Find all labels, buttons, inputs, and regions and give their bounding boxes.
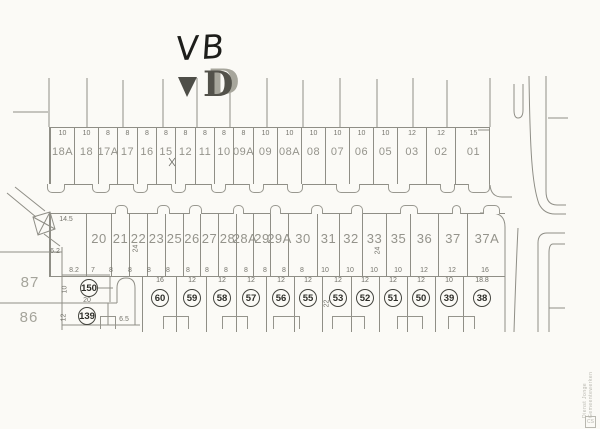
lot-frontage-dim: 12 <box>334 277 342 284</box>
parcel-frontage-dim: 15 <box>470 130 478 137</box>
driveway-mark <box>211 184 226 193</box>
lot-frontage-dim: 12 <box>277 277 285 284</box>
parcel-frontage-dim: 8 <box>184 130 188 137</box>
driveway-mark <box>270 205 281 214</box>
parcel-08A: 1008A <box>277 128 301 184</box>
watermark-text: Dienst Jonge Gemeentewerken <box>582 338 592 418</box>
parcel-09A: 809A <box>233 128 253 184</box>
dim-label: 8 <box>282 267 286 274</box>
circled-lot-number-139: 139 <box>78 307 96 325</box>
lot-frontage-dim: 12 <box>218 277 226 284</box>
circled-lot-number-57: 57 <box>242 289 260 307</box>
parcel-frontage-dim: 8 <box>222 130 226 137</box>
parcel-number: 22 <box>131 231 146 276</box>
dim-label: 8 <box>224 267 228 274</box>
parcel-frontage-dim: 10 <box>83 130 91 137</box>
dim-label: 12 <box>448 267 456 274</box>
driveway-mark <box>388 184 410 193</box>
driveway-mark <box>440 184 455 193</box>
dim-label: 8 <box>128 267 132 274</box>
circled-lot-number-58: 58 <box>213 289 231 307</box>
circled-lot-number-59: 59 <box>183 289 201 307</box>
driveway-mark <box>351 205 363 214</box>
parcel-15: 815 <box>156 128 175 184</box>
parcel-02: 1202 <box>426 128 455 184</box>
parcel-number: 18 <box>80 146 93 158</box>
parcel-number: 23 <box>149 231 164 276</box>
parcel-18: 1018 <box>74 128 98 184</box>
parcel-frontage-dim: 10 <box>262 130 270 137</box>
dim-label: 7 <box>91 267 95 274</box>
driveway-mark <box>311 205 323 214</box>
adjacent-parcel-label: 87 <box>21 274 40 291</box>
parcel-number: 01 <box>467 146 480 158</box>
parcel-number: 03 <box>405 146 418 158</box>
parcel-frontage-dim: 10 <box>286 130 294 137</box>
lot-separator <box>142 277 143 332</box>
parcel-12: 812 <box>175 128 195 184</box>
lot-frontage-dim: 16 <box>156 277 164 284</box>
dim-label: 10 <box>62 286 69 294</box>
parcel-20: 20 <box>86 214 111 276</box>
parcel-number: 15 <box>159 146 172 158</box>
parcel-number: 05 <box>379 146 392 158</box>
diagonal-road <box>15 187 45 211</box>
dim-label: 8 <box>205 267 209 274</box>
dim-label: 8 <box>147 267 151 274</box>
dim-label: 14.5 <box>59 216 73 223</box>
circled-lot-number-51: 51 <box>384 289 402 307</box>
block-corner <box>549 244 565 332</box>
parcel-05: 1005 <box>373 128 397 184</box>
parcel-number: 08 <box>307 146 320 158</box>
dim-label: 6.5 <box>119 316 129 323</box>
lot-separator <box>206 277 207 332</box>
circled-lot-number-55: 55 <box>299 289 317 307</box>
circled-lot-number-53: 53 <box>329 289 347 307</box>
dim-label: 6.2 <box>50 248 60 255</box>
parcel-number: 09 <box>259 146 272 158</box>
handwritten-block-label: VB <box>175 27 229 69</box>
printed-v-fragment <box>178 77 197 97</box>
parcel-number: 07 <box>331 146 344 158</box>
dim-label: 10 <box>394 267 402 274</box>
house-footprint <box>448 316 475 329</box>
driveway-mark <box>452 205 461 214</box>
dim-label: 8 <box>166 267 170 274</box>
parcel-number: 16 <box>140 146 153 158</box>
dim-label: 24 <box>133 245 140 253</box>
driveway-mark <box>468 184 490 193</box>
parcel-17A: 817A <box>98 128 117 184</box>
driveway-mark <box>189 205 202 214</box>
parcel-row-north: 1018A1018817A817816815812811810809A10091… <box>49 127 490 185</box>
adjacent-parcel-label: 86 <box>20 309 39 326</box>
house-footprint <box>332 316 365 329</box>
parcel-frontage-dim: 8 <box>106 130 110 137</box>
circled-lot-number-50: 50 <box>412 289 430 307</box>
street-island <box>514 84 523 118</box>
driveway-mark <box>287 184 303 193</box>
parcel-number: 02 <box>434 146 447 158</box>
driveway-mark <box>400 205 418 214</box>
parcel-frontage-dim: 8 <box>145 130 149 137</box>
parcel-11: 811 <box>195 128 214 184</box>
lot-frontage-dim: 12 <box>417 277 425 284</box>
driveway-mark <box>249 184 264 193</box>
house-footprint <box>163 316 189 329</box>
circled-lot-number-39: 39 <box>440 289 458 307</box>
street-line <box>529 76 566 214</box>
cadastral-map-scan: VB D Dienst Jonge Gemeentewerken CS 1018… <box>0 0 600 429</box>
dim-label: 20 <box>83 297 91 304</box>
parcel-number: 10 <box>217 146 230 158</box>
circled-lot-number-52: 52 <box>356 289 374 307</box>
dim-label: 10 <box>321 267 329 274</box>
diagonal-road <box>7 193 36 217</box>
house-footprint <box>273 316 300 329</box>
parcel-frontage-dim: 8 <box>164 130 168 137</box>
lot-frontage-dim: 12 <box>247 277 255 284</box>
driveway-mark <box>233 205 244 214</box>
driveway-mark <box>483 205 500 214</box>
parcel-08: 1008 <box>301 128 325 184</box>
parcel-frontage-dim: 12 <box>437 130 445 137</box>
parcel-row-middle: 202122232526272828A2929A3031323335363737… <box>49 213 505 277</box>
dim-label: 8 <box>244 267 248 274</box>
driveway-mark <box>47 184 65 193</box>
parcel-number: 06 <box>355 146 368 158</box>
parcel-07: 1007 <box>325 128 349 184</box>
parcel-frontage-dim: 10 <box>59 130 67 137</box>
block-corner <box>538 233 565 332</box>
lot-separator <box>266 277 267 332</box>
parcel-frontage-dim: 10 <box>382 130 390 137</box>
dim-label: 8 <box>109 267 113 274</box>
dim-label: 16 <box>481 267 489 274</box>
driveway-mark <box>115 205 128 214</box>
dim-label: 8 <box>263 267 267 274</box>
dim-label: 8 <box>300 267 304 274</box>
house-footprint <box>100 316 116 329</box>
driveway-mark <box>92 184 110 193</box>
dim-label: 22 <box>324 300 331 308</box>
circled-lot-number-150: 150 <box>80 279 98 297</box>
parcel-frontage-dim: 8 <box>242 130 246 137</box>
lot-frontage-dim: 10 <box>445 277 453 284</box>
house-footprint <box>397 316 423 329</box>
street-line <box>546 76 566 205</box>
parcel-01: 1501 <box>455 128 491 184</box>
watermark-logo: CS <box>585 416 596 428</box>
parcel-number: 12 <box>179 146 192 158</box>
parcel-frontage-dim: 10 <box>358 130 366 137</box>
driveway-mark <box>157 205 170 214</box>
dim-label: 10 <box>346 267 354 274</box>
dim-label: 10 <box>370 267 378 274</box>
parcel-number: 08A <box>279 146 300 158</box>
dim-label: 24 <box>375 247 382 255</box>
dim-label: 8.2 <box>69 267 79 274</box>
parcel-strip <box>50 214 86 276</box>
lot-frontage-dim: 12 <box>188 277 196 284</box>
parcel-frontage-dim: 10 <box>334 130 342 137</box>
street-corner <box>490 185 512 197</box>
printed-label-fragment: D <box>203 64 233 105</box>
parcel-number: 18A <box>52 146 73 158</box>
lot-frontage-dim: 12 <box>304 277 312 284</box>
parcel-frontage-dim: 8 <box>203 130 207 137</box>
parcel-21: 21 <box>111 214 129 276</box>
lot-frontage-dim: 18.8 <box>475 277 489 284</box>
parcel-frontage-dim: 8 <box>126 130 130 137</box>
parcel-06: 1006 <box>349 128 373 184</box>
driveway-mark <box>171 184 186 193</box>
dim-label: 12 <box>61 314 68 322</box>
parcel-number: 11 <box>199 146 211 158</box>
circled-lot-number-56: 56 <box>272 289 290 307</box>
dim-label: 12 <box>420 267 428 274</box>
parcel-18A: 1018A <box>50 128 74 184</box>
parcel-number: 09A <box>233 146 254 158</box>
circled-lot-number-38: 38 <box>473 289 491 307</box>
lot-frontage-dim: 12 <box>361 277 369 284</box>
parcel-number: 17 <box>121 146 134 158</box>
parcel-frontage-dim: 10 <box>310 130 318 137</box>
parcel-09: 1009 <box>253 128 277 184</box>
driveway-mark <box>336 184 360 193</box>
parcel-number: 17A <box>97 146 118 158</box>
parcel-17: 817 <box>117 128 137 184</box>
street-line <box>514 228 518 332</box>
lot-separator <box>379 277 380 332</box>
circled-lot-number-60: 60 <box>151 289 169 307</box>
parcel-03: 1203 <box>397 128 426 184</box>
house-footprint <box>222 316 248 329</box>
parcel-10: 810 <box>214 128 233 184</box>
parcel-frontage-dim: 12 <box>408 130 416 137</box>
dim-label: 8 <box>186 267 190 274</box>
driveway-mark <box>133 184 148 193</box>
parcel-16: 816 <box>137 128 156 184</box>
parcel-number: 21 <box>113 231 128 276</box>
lot-frontage-dim: 12 <box>389 277 397 284</box>
lot-separator <box>435 277 436 332</box>
